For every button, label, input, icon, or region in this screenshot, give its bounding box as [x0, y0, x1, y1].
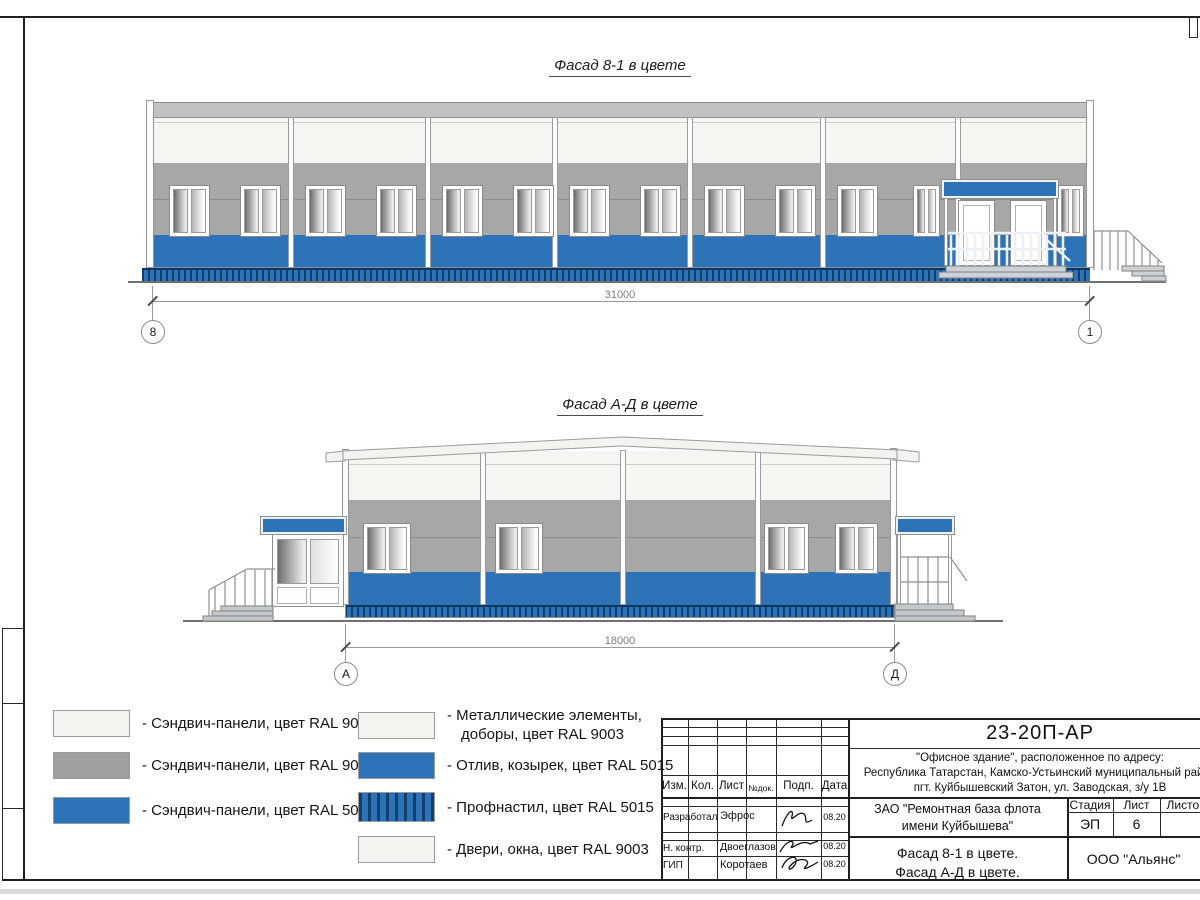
legend-item: - Отлив, козырек, цвет RAL 5015 — [358, 752, 701, 779]
facade2-plinth — [345, 605, 895, 618]
col-date: Дата — [821, 780, 848, 792]
legend-label: - Профнастил, цвет RAL 5015 — [447, 798, 691, 817]
facade1-title-text: Фасад 8-1 в цвете — [549, 57, 691, 77]
window-pane — [591, 189, 606, 233]
facade1-entrance-canopy — [942, 180, 1058, 198]
corner-box-line — [1197, 16, 1198, 37]
window-pane — [859, 189, 874, 233]
legend-label: - Сэндвич-панели, цвет RAL 9006 — [142, 756, 386, 775]
window-pane — [191, 189, 206, 233]
facade1-left-pilaster — [146, 100, 154, 268]
axis-bubble-D: Д — [883, 662, 907, 686]
window-pane — [309, 189, 324, 233]
window-pane — [779, 189, 794, 233]
legend-item: - Сэндвич-панели, цвет RAL 5015 — [53, 797, 386, 824]
titleblock-line — [848, 836, 1200, 838]
facade-window — [775, 185, 816, 237]
door-panel — [1015, 205, 1042, 261]
window-pane — [644, 189, 659, 233]
titleblock-line — [661, 745, 848, 746]
legend-item: - Сэндвич-панели, цвет RAL 9006 — [53, 752, 386, 779]
window-pane — [244, 189, 259, 233]
titleblock-line — [661, 775, 848, 776]
window-pane — [708, 189, 723, 233]
window-pane — [173, 189, 188, 233]
vestibule-glazing — [277, 539, 307, 584]
facade2-mullion — [755, 450, 761, 605]
signer-role: ГИП — [663, 860, 683, 871]
frame-left-line — [23, 16, 25, 880]
left-strip-line — [2, 703, 23, 704]
facade2-title-text: Фасад А-Д в цвете — [557, 396, 702, 416]
facade1-entrance-door — [1010, 200, 1047, 266]
frame-top-line — [0, 16, 1200, 18]
dim-line — [152, 301, 1090, 302]
legend-label: - Сэндвич-панели, цвет RAL 5015 — [142, 801, 386, 820]
facade1-plinth — [142, 268, 1090, 282]
axis-bubble-1: 1 — [1078, 320, 1102, 344]
left-strip-line — [2, 628, 23, 629]
titleblock-line — [661, 832, 848, 833]
titleblock-line — [661, 718, 1200, 720]
titleblock-line — [661, 727, 848, 728]
facade1-canopy-post — [944, 198, 948, 266]
doc-number: 23-20П-АР — [848, 722, 1200, 745]
window-pane — [726, 189, 741, 233]
facade-window — [495, 523, 543, 574]
facade1-canopy-post — [1053, 198, 1057, 266]
corner-box-line — [1189, 16, 1190, 37]
dim-line — [345, 647, 894, 648]
facade-window — [305, 185, 346, 237]
door-panel — [963, 205, 990, 261]
corner-box-line — [1189, 37, 1198, 38]
titleblock-line — [848, 748, 1200, 749]
facade-window — [363, 523, 411, 574]
facade1-roof-band — [150, 102, 1088, 118]
facade2-porch-post — [948, 534, 952, 605]
window-pane — [535, 189, 550, 233]
facade1-mullion — [687, 117, 693, 268]
drawing-title: Фасад 8-1 в цвете. — [848, 844, 1067, 863]
facade1-mullion — [288, 117, 294, 268]
titleblock-line — [1067, 812, 1200, 813]
stage-value: ЭП — [1067, 816, 1113, 832]
facade-window — [704, 185, 745, 237]
facade1-mullion — [425, 117, 431, 268]
left-strip-line — [2, 628, 3, 880]
window-pane — [380, 189, 395, 233]
facade2-mullion — [620, 450, 626, 605]
signature-icon — [778, 804, 820, 832]
facade-window — [240, 185, 281, 237]
address-line: "Офисное здание", расположенное по адрес… — [848, 751, 1200, 766]
window-pane — [928, 189, 936, 233]
dim-extension-line — [1089, 286, 1090, 321]
facade-window — [640, 185, 681, 237]
signer-date: 08.20 — [821, 859, 848, 869]
facade2-porch-canopy — [896, 517, 954, 534]
window-pane — [788, 527, 805, 570]
window-pane — [1061, 189, 1069, 233]
col-sign: Подп. — [776, 780, 821, 792]
legend-item: - Двери, окна, цвет RAL 9003 — [358, 836, 691, 863]
dim-extension-line — [152, 286, 153, 321]
facade-window — [835, 523, 878, 574]
legend-swatch-otliv — [358, 752, 435, 779]
stage-label: Стадия — [1067, 798, 1113, 812]
axis-bubble-A: А — [334, 662, 358, 686]
window-pane — [327, 189, 342, 233]
window-pane — [517, 189, 532, 233]
legend-swatch-profnastil — [358, 792, 435, 822]
legend-item: - Сэндвич-панели, цвет RAL 9003 — [53, 710, 386, 737]
facade1-ground-line — [128, 281, 1166, 283]
facade1-right-stair — [1094, 231, 1166, 281]
left-strip-line — [2, 808, 23, 809]
signer-date: 08.20 — [821, 812, 848, 822]
sheet-value: 6 — [1113, 816, 1160, 832]
drawing-sheet: Фасад 8-1 в цвете 31000 8 1 Фасад А-Д в … — [0, 0, 1200, 900]
signer-name: Эфрос — [720, 810, 755, 822]
legend-item: - Металлические элементы, доборы, цвет R… — [358, 705, 676, 745]
window-pane — [521, 527, 540, 570]
window-pane — [662, 189, 677, 233]
signer-role: Разработал — [663, 812, 717, 823]
signer-name: Двоеглазов — [720, 841, 776, 853]
facade1-entrance-door — [958, 200, 995, 266]
paper-edge-shadow — [0, 889, 1200, 894]
col-doc: №док. — [746, 783, 776, 793]
window-pane — [446, 189, 461, 233]
address-line: Республика Татарстан, Камско-Устьинский … — [848, 766, 1200, 781]
facade-window — [442, 185, 483, 237]
legend-swatch-ral9003 — [53, 710, 130, 737]
window-pane — [797, 189, 812, 233]
window-pane — [841, 189, 856, 233]
titleblock-line — [661, 736, 848, 737]
facade2-dim-label: 18000 — [570, 635, 670, 647]
vestibule-door-panel — [277, 587, 307, 604]
window-pane — [464, 189, 479, 233]
vestibule-door-panel — [310, 587, 339, 604]
facade-window — [837, 185, 878, 237]
facade2-mullion — [480, 450, 486, 605]
window-pane — [917, 189, 925, 233]
facade1-right-pilaster — [1086, 100, 1094, 268]
legend-label: - Сэндвич-панели, цвет RAL 9003 — [142, 714, 386, 733]
facade2-porch-railing — [895, 557, 975, 621]
window-pane — [1072, 189, 1080, 233]
legend-label: - Отлив, козырек, цвет RAL 5015 — [447, 756, 701, 775]
window-pane — [499, 527, 518, 570]
facade1-mullion — [820, 117, 826, 268]
window-pane — [262, 189, 277, 233]
facade2-vestibule — [272, 534, 344, 607]
facade-window — [913, 185, 940, 237]
facade-window — [376, 185, 417, 237]
facade2-vestibule-canopy — [261, 517, 346, 534]
sheet-label: Лист — [1113, 798, 1160, 812]
client-name: имени Куйбышева" — [848, 819, 1067, 833]
signer-date: 08.20 — [821, 841, 848, 851]
facade2-ground-line — [183, 620, 1003, 622]
window-pane — [367, 527, 386, 570]
legend-label: - Металлические элементы, доборы, цвет R… — [447, 706, 676, 744]
axis-bubble-8: 8 — [141, 320, 165, 344]
drawing-title: Фасад А-Д в цвете. — [848, 863, 1067, 882]
signature-icon — [776, 852, 822, 874]
window-pane — [858, 527, 874, 570]
window-pane — [768, 527, 785, 570]
facade1-title: Фасад 8-1 в цвете — [400, 57, 840, 77]
legend-item: - Профнастил, цвет RAL 5015 — [358, 792, 691, 822]
facade-window — [513, 185, 554, 237]
signer-role: Н. контр. — [663, 843, 704, 854]
legend-swatch-metal — [358, 712, 435, 739]
legend-swatch-doors — [358, 836, 435, 863]
address-line: пгт. Куйбышевский Затон, ул. Заводская, … — [848, 781, 1200, 796]
facade2-left-stair — [203, 569, 275, 621]
col-kol: Кол. — [688, 780, 717, 792]
legend-swatch-ral9006 — [53, 752, 130, 779]
facade2-title: Фасад А-Д в цвете — [410, 396, 850, 416]
facade-window — [569, 185, 610, 237]
col-izm: Изм. — [661, 780, 688, 792]
organization-name: ООО "Альянс" — [1067, 851, 1200, 867]
facade-window — [169, 185, 210, 237]
signer-name: Коротаев — [720, 859, 768, 871]
col-list: Лист — [717, 780, 746, 792]
sheets-label: Листов — [1160, 798, 1200, 812]
legend-label: - Двери, окна, цвет RAL 9003 — [447, 840, 691, 859]
facade-window — [764, 523, 809, 574]
legend-swatch-ral5015 — [53, 797, 130, 824]
window-pane — [398, 189, 413, 233]
window-pane — [839, 527, 855, 570]
window-pane — [389, 527, 408, 570]
facade2-porch-post — [897, 534, 901, 605]
vestibule-glazing — [310, 539, 339, 584]
facade1-dim-label: 31000 — [570, 289, 670, 301]
window-pane — [573, 189, 588, 233]
client-name: ЗАО "Ремонтная база флота — [848, 802, 1067, 816]
facade-window — [1057, 185, 1084, 237]
